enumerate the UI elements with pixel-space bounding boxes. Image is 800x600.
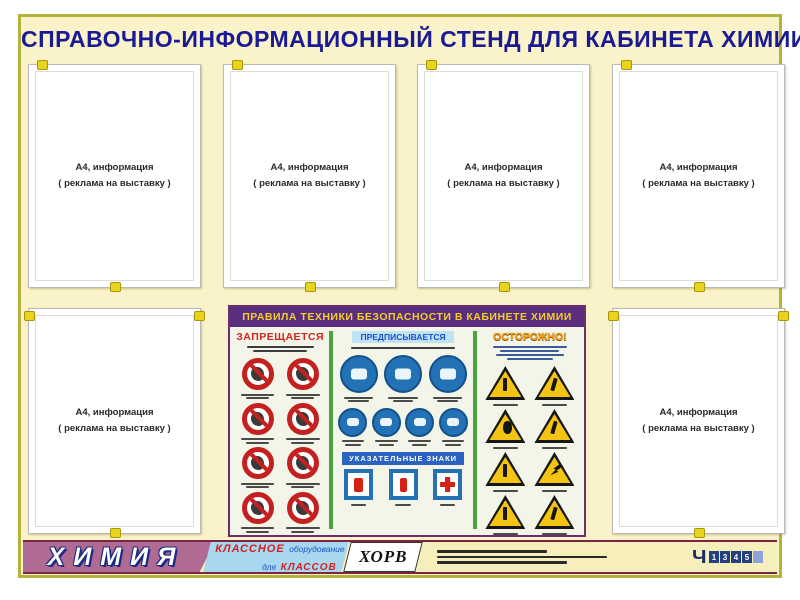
pocket: А4, информация( реклама на выставку ) bbox=[223, 64, 396, 288]
pocket: А4, информация( реклама на выставку ) bbox=[417, 64, 590, 288]
pocket-sheet: А4, информация( реклама на выставку ) bbox=[619, 71, 778, 281]
pocket-text-line2: ( реклама на выставку ) bbox=[58, 176, 170, 192]
poster-title: ПРАВИЛА ТЕХНИКИ БЕЗОПАСНОСТИ В КАБИНЕТЕ … bbox=[230, 307, 584, 327]
pocket-sheet: А4, информация( реклама на выставку ) bbox=[35, 71, 194, 281]
warning-column: ОСТОРОЖНО! bbox=[478, 329, 582, 531]
warning-triangle-icon bbox=[485, 366, 525, 400]
indicating-sign bbox=[433, 469, 462, 507]
mandatory-sign-icon bbox=[384, 355, 422, 393]
mandatory-caption-line bbox=[334, 344, 472, 353]
prohibited-caption-lines bbox=[232, 343, 328, 356]
warning-triangle-icon bbox=[534, 452, 574, 486]
pocket-sheet: А4, информация( реклама на выставку ) bbox=[35, 315, 194, 527]
prohibited-column: ЗАПРЕЩАЕТСЯ bbox=[232, 329, 328, 531]
pocket-text-line2: ( реклама на выставку ) bbox=[58, 421, 170, 437]
warning-signs-grid bbox=[478, 364, 582, 538]
warning-sign bbox=[482, 366, 529, 407]
pocket-text-line1: А4, информация bbox=[253, 160, 365, 176]
mandatory-sign-icon bbox=[372, 408, 401, 437]
pin-icon bbox=[194, 311, 205, 321]
pocket-text-line1: А4, информация bbox=[642, 160, 754, 176]
brand-banner: КЛАССНОЕ оборудование для КЛАССОВ bbox=[203, 542, 348, 572]
warning-sign bbox=[531, 409, 578, 450]
prohibition-sign-icon bbox=[287, 358, 319, 390]
mandatory-sign bbox=[338, 408, 367, 448]
mandatory-sign bbox=[439, 408, 468, 448]
column-divider bbox=[329, 331, 333, 529]
warning-triangle-icon bbox=[534, 495, 574, 529]
footer-strip: ХИМИЯ КЛАССНОЕ оборудование для КЛАССОВ … bbox=[23, 540, 777, 574]
fine-print-lines bbox=[419, 542, 693, 572]
corner-logo-digit: 5 bbox=[742, 551, 752, 563]
prohibition-sign bbox=[236, 403, 279, 446]
brand-word-3: для bbox=[262, 562, 276, 572]
warning-triangle-icon bbox=[485, 409, 525, 443]
brand-word-1: КЛАССНОЕ bbox=[215, 543, 284, 555]
prohibition-sign bbox=[236, 492, 279, 535]
brand-word-4: КЛАССОВ bbox=[281, 562, 337, 573]
pin-icon bbox=[694, 282, 705, 292]
warning-triangle-icon bbox=[485, 452, 525, 486]
mandatory-sign-icon bbox=[338, 408, 367, 437]
mandatory-sign bbox=[340, 355, 378, 404]
mandatory-signs-row-1 bbox=[334, 353, 472, 406]
mandatory-signs-row-2 bbox=[334, 406, 472, 450]
prohibited-signs-grid bbox=[232, 356, 328, 536]
subject-label: ХИМИЯ bbox=[48, 543, 185, 572]
pin-icon bbox=[778, 311, 789, 321]
warning-sign bbox=[482, 409, 529, 450]
pocket: А4, информация( реклама на выставку ) bbox=[612, 308, 785, 534]
mandatory-column: ПРЕДПИСЫВАЕТСЯ bbox=[334, 329, 472, 531]
prohibition-sign bbox=[281, 358, 324, 401]
warning-caption-lines bbox=[478, 343, 582, 364]
warning-triangle-icon bbox=[534, 409, 574, 443]
mandatory-header: ПРЕДПИСЫВАЕТСЯ bbox=[352, 331, 454, 343]
manufacturer-logo: ХОРВ bbox=[343, 542, 422, 572]
prohibition-sign bbox=[281, 492, 324, 535]
warning-sign bbox=[482, 495, 529, 536]
warning-header: ОСТОРОЖНО! bbox=[478, 331, 582, 343]
warning-sign bbox=[531, 366, 578, 407]
pocket: А4, информация( реклама на выставку ) bbox=[28, 64, 201, 288]
pin-icon bbox=[305, 282, 316, 292]
prohibition-sign bbox=[236, 358, 279, 401]
mandatory-sign bbox=[429, 355, 467, 404]
warning-sign bbox=[531, 452, 578, 493]
prohibition-sign bbox=[236, 447, 279, 490]
prohibition-sign-icon bbox=[242, 358, 274, 390]
mandatory-sign bbox=[372, 408, 401, 448]
corner-logo-digit: 3 bbox=[720, 551, 730, 563]
pocket-text-line2: ( реклама на выставку ) bbox=[642, 176, 754, 192]
corner-logo: Ч 1 3 4 5 bbox=[693, 542, 777, 572]
pocket-text-line1: А4, информация bbox=[447, 160, 559, 176]
pin-icon bbox=[232, 60, 243, 70]
pin-icon bbox=[621, 60, 632, 70]
indicating-sign bbox=[344, 469, 373, 507]
pocket-text-line2: ( реклама на выставку ) bbox=[253, 176, 365, 192]
manufacturer-logo-text: ХОРВ bbox=[359, 547, 407, 567]
prohibition-sign bbox=[281, 447, 324, 490]
prohibition-sign-icon bbox=[242, 492, 274, 524]
corner-logo-mark: Ч bbox=[692, 547, 707, 568]
mandatory-sign-icon bbox=[340, 355, 378, 393]
prohibition-sign bbox=[281, 403, 324, 446]
pin-icon bbox=[110, 528, 121, 538]
pocket-sheet: А4, информация( реклама на выставку ) bbox=[424, 71, 583, 281]
mandatory-sign bbox=[384, 355, 422, 404]
pin-icon bbox=[37, 60, 48, 70]
pocket-sheet: А4, информация( реклама на выставку ) bbox=[230, 71, 389, 281]
warning-triangle-icon bbox=[485, 495, 525, 529]
pocket-text-line2: ( реклама на выставку ) bbox=[447, 176, 559, 192]
prohibited-header: ЗАПРЕЩАЕТСЯ bbox=[232, 331, 328, 343]
indicating-sign bbox=[389, 469, 418, 507]
prohibition-sign-icon bbox=[242, 447, 274, 479]
warning-triangle-icon bbox=[534, 366, 574, 400]
indicating-sign-icon bbox=[344, 469, 373, 500]
pocket-text-line1: А4, информация bbox=[58, 405, 170, 421]
pin-icon bbox=[694, 528, 705, 538]
indicating-sign-icon bbox=[433, 469, 462, 500]
pin-icon bbox=[24, 311, 35, 321]
stand-title: СПРАВОЧНО-ИНФОРМАЦИОННЫЙ СТЕНД ДЛЯ КАБИН… bbox=[21, 26, 779, 53]
mandatory-sign-icon bbox=[405, 408, 434, 437]
indicating-signs-header: УКАЗАТЕЛЬНЫЕ ЗНАКИ bbox=[342, 452, 464, 465]
pocket-text-line2: ( реклама на выставку ) bbox=[642, 421, 754, 437]
chemistry-info-stand: СПРАВОЧНО-ИНФОРМАЦИОННЫЙ СТЕНД ДЛЯ КАБИН… bbox=[18, 14, 782, 578]
pocket-text-line1: А4, информация bbox=[58, 160, 170, 176]
safety-rules-poster: ПРАВИЛА ТЕХНИКИ БЕЗОПАСНОСТИ В КАБИНЕТЕ … bbox=[228, 305, 586, 537]
pocket: А4, информация( реклама на выставку ) bbox=[612, 64, 785, 288]
corner-logo-box bbox=[753, 551, 763, 563]
pin-icon bbox=[608, 311, 619, 321]
pin-icon bbox=[110, 282, 121, 292]
pin-icon bbox=[426, 60, 437, 70]
indicating-sign-icon bbox=[389, 469, 418, 500]
mandatory-sign-icon bbox=[429, 355, 467, 393]
pocket: А4, информация( реклама на выставку ) bbox=[28, 308, 201, 534]
column-divider bbox=[473, 331, 477, 529]
brand-word-2: оборудование bbox=[289, 544, 344, 554]
mandatory-sign-icon bbox=[439, 408, 468, 437]
warning-sign bbox=[482, 452, 529, 493]
prohibition-sign-icon bbox=[287, 403, 319, 435]
mandatory-sign bbox=[405, 408, 434, 448]
pocket-sheet: А4, информация( реклама на выставку ) bbox=[619, 315, 778, 527]
indicating-signs-row bbox=[334, 467, 472, 509]
prohibition-sign-icon bbox=[242, 403, 274, 435]
corner-logo-digit: 4 bbox=[731, 551, 741, 563]
pocket-text-line1: А4, информация bbox=[642, 405, 754, 421]
prohibition-sign-icon bbox=[287, 447, 319, 479]
prohibition-sign-icon bbox=[287, 492, 319, 524]
pin-icon bbox=[499, 282, 510, 292]
subject-banner: ХИМИЯ bbox=[23, 542, 215, 572]
corner-logo-digit: 1 bbox=[709, 551, 719, 563]
warning-sign bbox=[531, 495, 578, 536]
